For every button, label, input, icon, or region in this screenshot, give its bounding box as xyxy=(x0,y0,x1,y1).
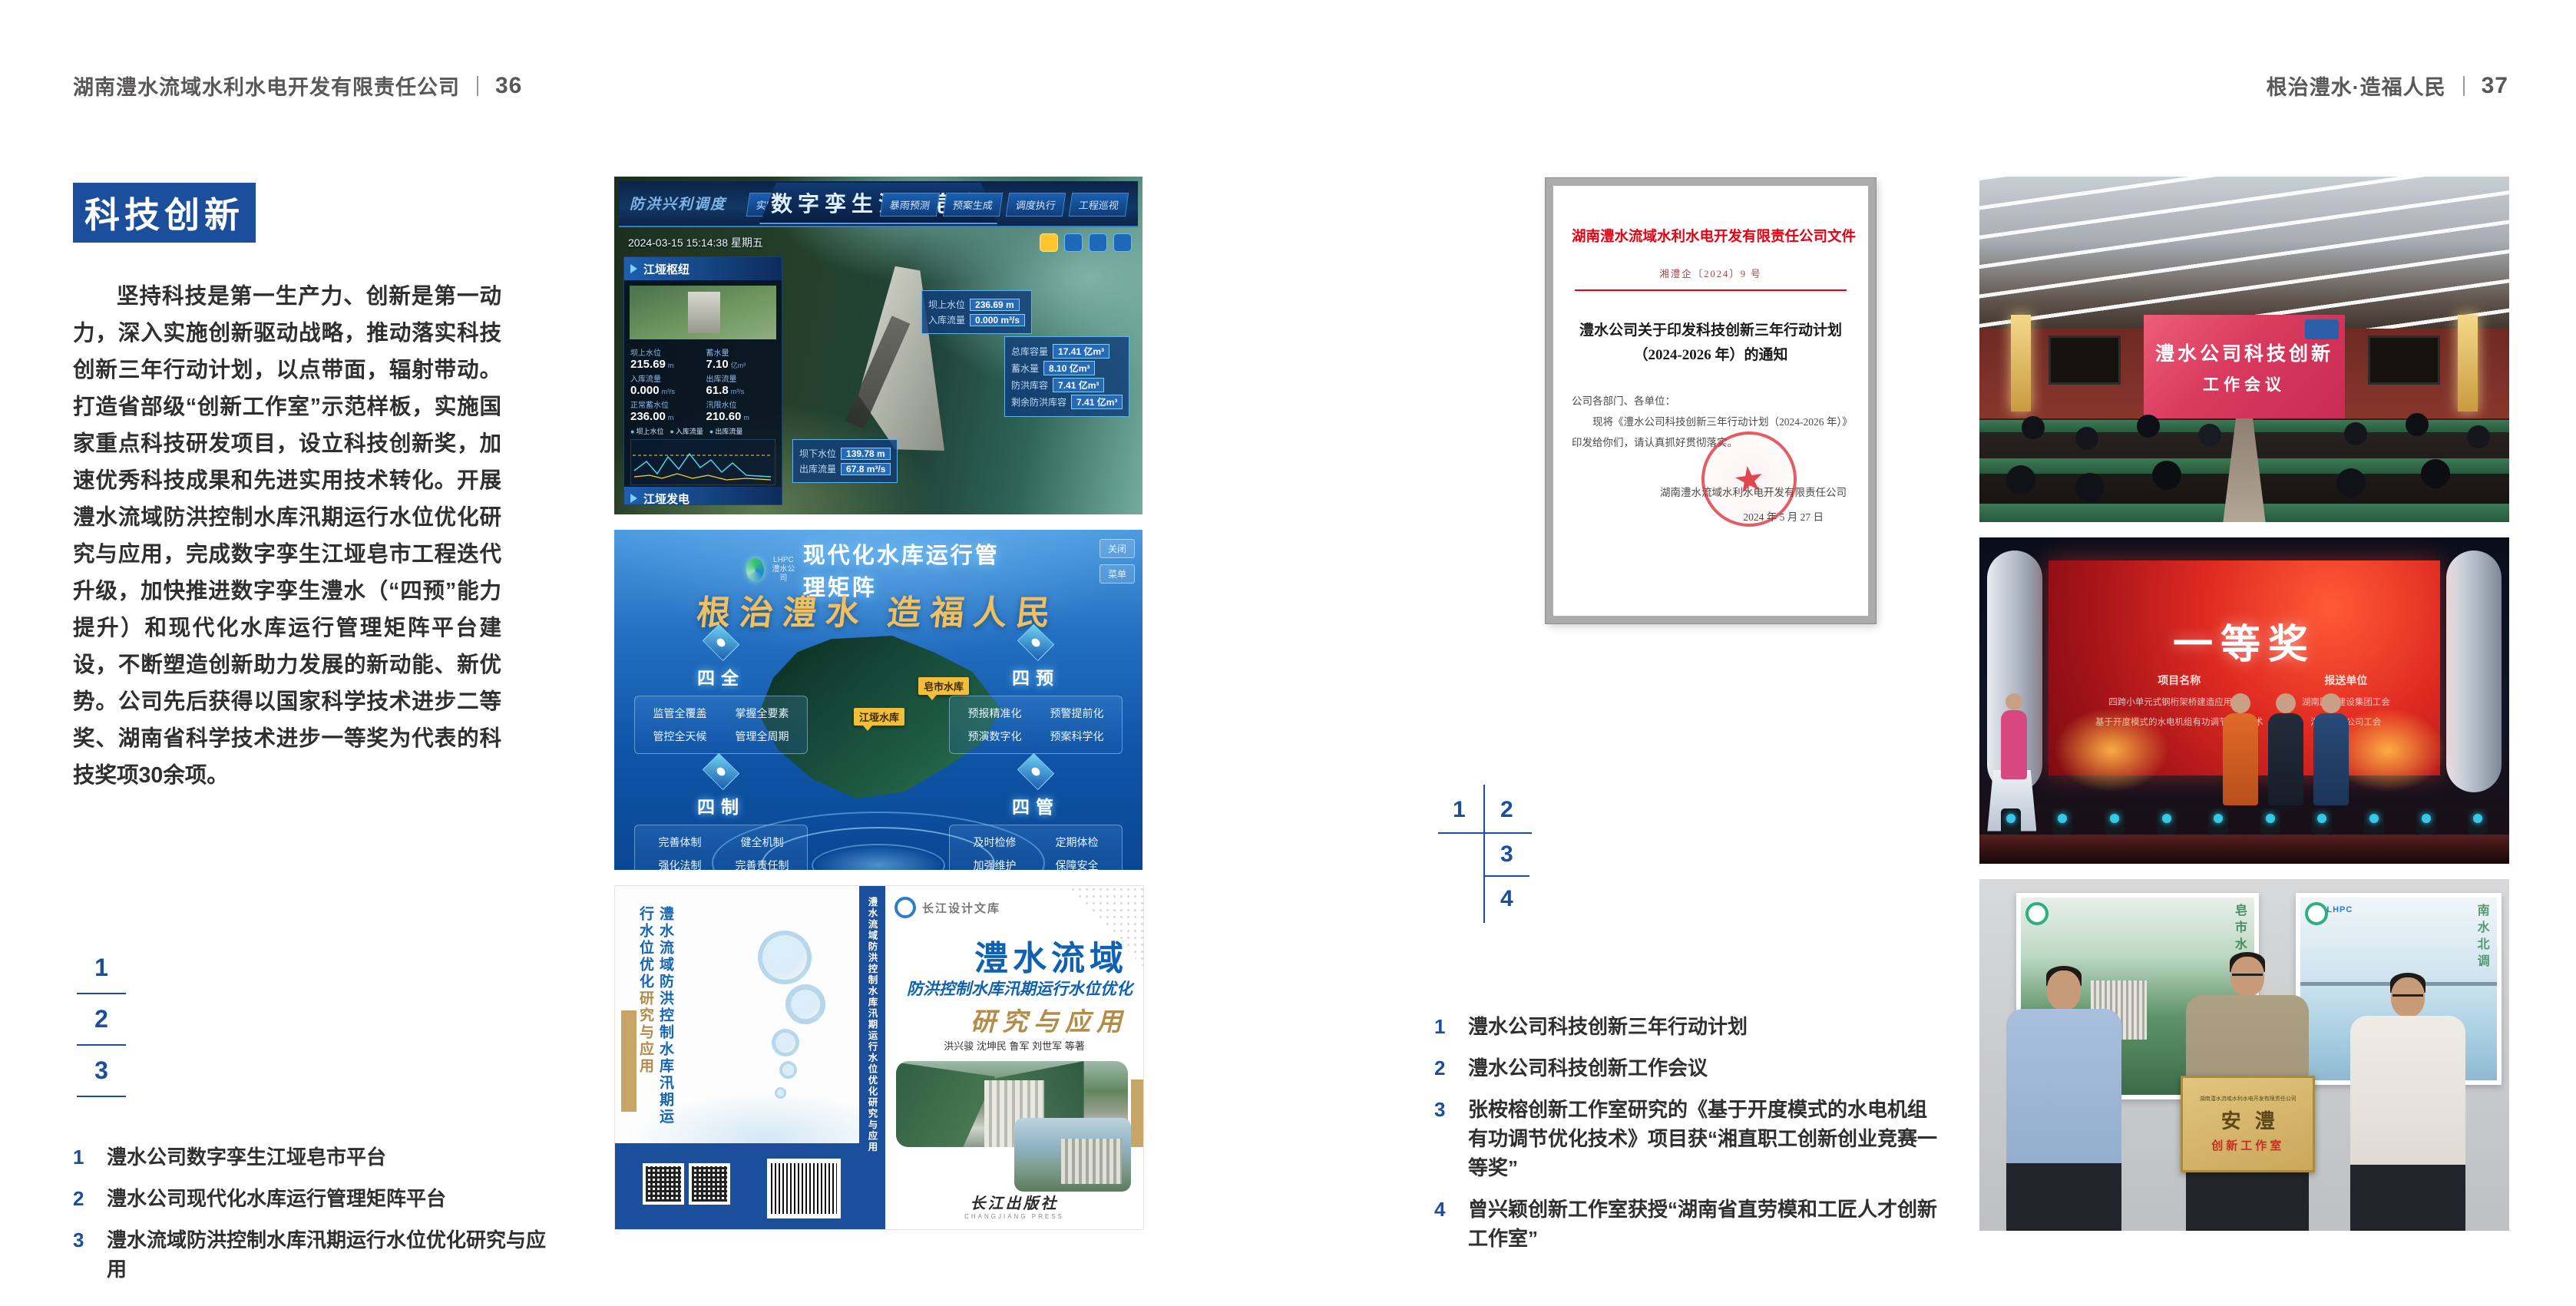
group-item: 定期体检 xyxy=(1038,835,1116,850)
triangle-icon xyxy=(630,264,637,273)
callout-label: 蓄水量 xyxy=(1011,362,1039,375)
stage-light xyxy=(2312,808,2332,835)
stat-number: 61.8 xyxy=(706,384,729,397)
callout-value: 8.10 亿m³ xyxy=(1043,361,1095,375)
spine-title: 澧水流域防洪控制水库汛期运行水位优化研究与应用 xyxy=(865,897,880,1153)
user-icon xyxy=(1113,233,1132,252)
stage-light xyxy=(2052,808,2072,835)
captions-right: 1 澧水公司科技创新三年行动计划 2 澧水公司科技创新工作会议 3 张桉榕创新工… xyxy=(1434,1012,1941,1265)
header-divider xyxy=(477,76,478,96)
matrix-button: 关闭 xyxy=(1100,539,1135,558)
caption-row: 3 张桉榕创新工作室研究的《基于开度模式的水电机组有功调节优化技术》项目获“湘直… xyxy=(1434,1095,1941,1182)
callout-row: 出库流量67.8 m³/s xyxy=(799,462,891,475)
stat-label: 正常蓄水位 xyxy=(630,398,700,410)
platform-header-bar: 防洪兴利调度 实时监测洪水预报防洪预演 数字孪生江垭皂市 暴雨预测预案生成调度执… xyxy=(619,181,1138,227)
figure-index-number: 3 xyxy=(1500,841,1513,868)
stage-pillar xyxy=(2446,551,2502,792)
qr-code xyxy=(689,1163,730,1205)
stat-number: 236.00 xyxy=(630,410,666,423)
group-name: 四管 xyxy=(949,792,1123,818)
document-date: 2024 年 5 月 27 日 xyxy=(1572,508,1850,524)
callout-value: 17.41 亿m³ xyxy=(1053,344,1109,359)
caption-text: 澧水公司现代化水库运行管理矩阵平台 xyxy=(107,1184,446,1213)
lhpc-logo-icon xyxy=(2305,902,2328,925)
index-horizontal-line xyxy=(1483,875,1529,877)
group-item: 保障安全 xyxy=(1038,858,1116,870)
platform-side-panel: 江垭枢纽 坝上水位215.69m蓄水量7.10亿m³入库流量0.000m³/s出… xyxy=(623,256,782,505)
stat-unit: m³/s xyxy=(731,388,745,395)
caption-row: 2 澧水公司科技创新工作会议 xyxy=(1434,1053,1941,1083)
water-droplet xyxy=(775,1087,786,1099)
hub-stats-grid: 坝上水位215.69m蓄水量7.10亿m³入库流量0.000m³/s出库流量61… xyxy=(624,345,782,425)
innovation-workshop-plaque: 湖南澧水流域水利水电开发有限责任公司 安澧 创新工作室 xyxy=(2181,1076,2315,1172)
water-droplet xyxy=(779,1061,797,1079)
callout-label: 出库流量 xyxy=(799,462,836,475)
group-item: 预警提前化 xyxy=(1038,706,1116,721)
group-item: 管控全天候 xyxy=(641,729,719,744)
index-horizontal-line xyxy=(1438,832,1532,834)
caption-text: 张桉榕创新工作室研究的《基于开度模式的水电机组有功调节优化技术》项目获“湘直职工… xyxy=(1468,1095,1941,1182)
body-paragraph: 坚持科技是第一生产力、创新是第一动力，深入实施创新驱动战略，推动落实科技创新三年… xyxy=(73,278,501,794)
caption-number: 2 xyxy=(73,1184,93,1213)
matrix-button: 菜单 xyxy=(1100,564,1135,584)
group-name: 四预 xyxy=(949,663,1123,689)
page-number-left: 36 xyxy=(495,73,522,99)
book-title-tail: 研究与应用 xyxy=(898,1001,1128,1038)
stat-unit: m xyxy=(668,414,674,422)
page-number-right: 37 xyxy=(2482,73,2508,99)
callout-label: 防洪库容 xyxy=(1011,379,1048,392)
photo-innovation-meeting: 澧水公司科技创新 工作会议 xyxy=(1979,177,2509,522)
stage-light xyxy=(2001,808,2021,835)
caption-row: 1 澧水公司科技创新三年行动计划 xyxy=(1434,1012,1941,1041)
callout-label: 总库容量 xyxy=(1011,345,1048,358)
series-logo-icon xyxy=(894,897,916,918)
callout-value: 7.41 亿m³ xyxy=(1071,395,1123,409)
panel-power-title: 江垭发电 xyxy=(643,491,689,506)
document-number: 湘澧企〔2024〕9 号 xyxy=(1572,266,1850,280)
mini-dam xyxy=(688,292,720,332)
figure-official-document: 湖南澧水流域水利水电开发有限责任公司文件 湘澧企〔2024〕9 号 澧水公司关于… xyxy=(1546,178,1876,623)
person-right xyxy=(2350,977,2465,1231)
legend-item: 坝上水位 xyxy=(630,426,663,436)
slogan-text: 根治澧水·造福人民 xyxy=(2267,71,2446,101)
figure-index-number: 1 xyxy=(1453,797,1466,823)
plaque-subtitle: 创新工作室 xyxy=(2211,1137,2284,1153)
index-vertical-line xyxy=(1483,785,1485,923)
diamond-icon xyxy=(703,624,739,661)
stat-value: 236.00m xyxy=(630,410,700,423)
callout-value: 67.8 m³/s xyxy=(841,463,891,475)
audience-silhouettes xyxy=(2006,465,2035,494)
callout-upstream: 坝上水位236.69 m入库流量0.000 m³/s xyxy=(921,290,1032,334)
caption-text: 澧水公司科技创新工作会议 xyxy=(1468,1053,1708,1083)
screen-logo xyxy=(2305,319,2339,339)
hub-thumbnail-photo xyxy=(630,286,776,339)
caption-text: 澧水流域防洪控制水库汛期运行水位优化研究与应用 xyxy=(107,1225,564,1284)
stat-label: 坝上水位 xyxy=(630,346,700,358)
group-item: 掌握全要素 xyxy=(723,706,801,721)
chart-svg xyxy=(631,440,775,483)
water-droplet xyxy=(758,931,812,984)
callout-row: 坝上水位236.69 m xyxy=(928,298,1025,311)
platform-tab: 工程巡视 xyxy=(1069,193,1129,217)
callout-row: 剩余防洪库容7.41 亿m³ xyxy=(1011,395,1123,409)
tan-accent-bar xyxy=(621,1010,637,1112)
figure-index-left: 123 xyxy=(77,946,126,1108)
callout-row: 蓄水量8.10 亿m³ xyxy=(1011,361,1123,375)
caption-number: 3 xyxy=(1434,1095,1454,1182)
callout-label: 剩余防洪库容 xyxy=(1011,395,1066,408)
tan-accent-bar xyxy=(1131,1080,1143,1147)
stat-value: 61.8m³/s xyxy=(706,384,776,397)
group-name: 四全 xyxy=(634,663,808,689)
lhpc-logo-text: LHPC xyxy=(2326,905,2353,914)
diamond-icon xyxy=(1017,753,1054,790)
back-title-blue: 澧水流域 xyxy=(657,906,673,974)
caption-number: 1 xyxy=(1434,1012,1454,1041)
cover-photo-dam-2 xyxy=(1014,1118,1131,1192)
group-item: 预报精准化 xyxy=(956,706,1033,721)
awardee-blue xyxy=(2313,713,2349,805)
stat: 坝上水位215.69m xyxy=(630,346,700,371)
stat-label: 汛限水位 xyxy=(706,398,776,410)
column-header: 项目名称 xyxy=(2095,673,2264,688)
screen-title-line2: 工作会议 xyxy=(2203,372,2286,395)
legend-item: 出库流量 xyxy=(709,426,742,436)
stat-label: 出库流量 xyxy=(706,372,776,384)
callout-label: 入库流量 xyxy=(928,313,965,326)
stage-light xyxy=(2260,808,2280,835)
callout-label: 坝上水位 xyxy=(928,298,965,311)
group-item: 预案科学化 xyxy=(1038,729,1116,744)
back-cover-blue-band xyxy=(615,1143,859,1229)
callout-value: 139.78 m xyxy=(841,448,891,460)
diamond-icon xyxy=(1017,624,1054,661)
platform-tab: 调度执行 xyxy=(1006,193,1066,217)
stat-value: 215.69m xyxy=(630,358,700,371)
group-panel: 监管全覆盖掌握全要素管控全天候管理全周期 xyxy=(634,696,808,754)
column-header: 报送单位 xyxy=(2290,673,2401,688)
caption-text: 澧水公司数字孪生江垭皂市平台 xyxy=(107,1142,386,1172)
plaque-title: 安澧 xyxy=(2207,1106,2289,1134)
panel-hub-title: 江垭枢纽 xyxy=(643,261,689,277)
book-spine: 澧水流域防洪控制水库汛期运行水位优化研究与应用 xyxy=(859,886,885,1229)
captions-left: 1 澧水公司数字孪生江垭皂市平台 2 澧水公司现代化水库运行管理矩阵平台 3 澧… xyxy=(73,1142,564,1296)
figure-book-cover: 澧水流域防洪控制水库汛期运行水位优化研究与应用 澧水流域防洪控制水库汛期运行水位… xyxy=(614,885,1144,1230)
stat-value: 0.000m³/s xyxy=(630,384,700,397)
platform-tabs-right: 暴雨预测预案生成调度执行工程巡视 xyxy=(881,193,1127,217)
document-red-header: 湖南澧水流域水利水电开发有限责任公司文件 xyxy=(1572,226,1850,246)
stat-value: 210.60m xyxy=(706,410,776,423)
figure-index-divider xyxy=(77,1096,126,1097)
matrix-slogan: 根治澧水 造福人民 xyxy=(695,585,1063,634)
publisher-name-en: CHANGJIANG PRESS xyxy=(885,1213,1143,1220)
stat-number: 0.000 xyxy=(630,384,660,397)
stat-value: 7.10亿m³ xyxy=(706,358,776,371)
callout-value: 0.000 m³/s xyxy=(970,314,1025,326)
matrix-buttons: 关闭菜单 xyxy=(1100,539,1135,584)
caption-number: 2 xyxy=(1434,1053,1454,1083)
document-red-rule xyxy=(1575,289,1847,291)
stat: 正常蓄水位236.00m xyxy=(630,398,700,423)
stat: 出库流量61.8m³/s xyxy=(706,372,776,397)
group-item: 强化法制 xyxy=(641,858,719,870)
right-page-header: 根治澧水·造福人民 37 xyxy=(2267,71,2508,101)
group-item: 预演数字化 xyxy=(956,729,1033,744)
poster-calligraphy: 南水北调 xyxy=(2472,904,2491,971)
caption-row: 4 曾兴颖创新工作室获授“湖南省直劳模和工匠人才创新工作室” xyxy=(1434,1195,1941,1253)
platform-mode-label: 防洪兴利调度 xyxy=(630,193,726,213)
figure-digital-twin-platform: 坝上水位236.69 m入库流量0.000 m³/s 总库容量17.41 亿m³… xyxy=(614,177,1143,514)
left-page-header: 湖南澧水流域水利水电开发有限责任公司 36 xyxy=(73,71,522,101)
caption-row: 3 澧水流域防洪控制水库汛期运行水位优化研究与应用 xyxy=(73,1225,564,1284)
panel-hub-header: 江垭枢纽 xyxy=(624,257,782,280)
back-title-tan: 研究与应用 xyxy=(637,990,653,1075)
callout-row: 防洪库容7.41 亿m³ xyxy=(1011,378,1123,392)
stage-light xyxy=(2105,808,2125,835)
caption-text: 曾兴颖创新工作室获授“湖南省直劳模和工匠人才创新工作室” xyxy=(1468,1195,1941,1253)
callout-value: 236.69 m xyxy=(970,299,1020,311)
diamond-icon xyxy=(703,753,739,790)
panel-power-header: 江垭发电 xyxy=(624,487,782,505)
person-left xyxy=(2006,970,2121,1231)
award-title: 一等奖 xyxy=(2049,612,2441,670)
lhpc-logo-icon xyxy=(746,558,764,581)
platform-timestamp: 2024-03-15 15:14:38 星期五 xyxy=(628,235,763,250)
stat-unit: m³/s xyxy=(662,388,676,395)
header-divider xyxy=(2463,76,2465,96)
caption-row: 1 澧水公司数字孪生江垭皂市平台 xyxy=(73,1142,564,1172)
figure-index-divider xyxy=(77,993,126,994)
photo-award-ceremony: 一等奖 项目名称 四跨小单元式钢桁架桥建造应用技术 基于开度模式的水电机组有功调… xyxy=(1979,537,2509,864)
platform-tab: 预案生成 xyxy=(943,193,1003,217)
photo-workshop-plaque: 皂市水库 LHPC 南水北调 湖南澧水流域水利水电开发有限责任公司 安澧 创新工… xyxy=(1979,879,2509,1231)
book-front-cover: 长江设计文库 澧水流域 防洪控制水库汛期运行水位优化 研究与应用 洪兴骏 沈坤民… xyxy=(885,886,1143,1229)
stage-glow xyxy=(2054,708,2169,792)
stat-unit: m xyxy=(668,362,674,369)
stage-light xyxy=(2468,808,2488,835)
locate-icon xyxy=(1089,233,1107,252)
book-title-sub: 防洪控制水库汛期运行水位优化 xyxy=(890,977,1133,1000)
platform-tab: 暴雨预测 xyxy=(880,193,940,217)
document-paragraph: 现将《澧水公司科技创新三年行动计划（2024-2026 年）》印发给你们，请认真… xyxy=(1572,412,1850,453)
gold-light-column xyxy=(2011,315,2031,412)
callout-label: 坝下水位 xyxy=(799,447,836,460)
stat-unit: m xyxy=(743,414,749,422)
group-name: 四制 xyxy=(634,792,808,818)
platform-toolbar-icons xyxy=(1040,233,1132,252)
plaque-header: 湖南澧水流域水利水电开发有限责任公司 xyxy=(2200,1095,2297,1103)
publisher-block: 长江出版社 CHANGJIANG PRESS xyxy=(885,1191,1143,1220)
book-back-cover: 澧水流域防洪控制水库汛期运行水位优化研究与应用 xyxy=(615,886,859,1229)
publisher-name: 长江出版社 xyxy=(885,1191,1143,1213)
stat-number: 215.69 xyxy=(630,358,666,371)
matrix-group-siyu: 四预 预报精准化预警提前化预演数字化预案科学化 xyxy=(949,628,1123,754)
triangle-icon xyxy=(630,494,637,503)
group-item: 完善体制 xyxy=(641,835,719,850)
stat: 汛限水位210.60m xyxy=(706,398,776,423)
stage-light xyxy=(2416,808,2436,835)
layers-icon xyxy=(1064,233,1083,252)
host-figure xyxy=(2001,710,2027,779)
figure-index-number: 2 xyxy=(1500,797,1513,823)
wall-tv xyxy=(2049,336,2121,385)
alert-icon xyxy=(1040,233,1058,252)
projection-screen: 澧水公司科技创新 工作会议 xyxy=(2144,315,2345,418)
caption-number: 3 xyxy=(73,1225,93,1284)
stage-light xyxy=(2364,808,2384,835)
stat-number: 7.10 xyxy=(706,358,729,371)
presenter-suit xyxy=(2268,713,2303,805)
stage-lights-row xyxy=(2001,808,2488,835)
water-droplet xyxy=(772,1029,799,1056)
legend-item: 入库流量 xyxy=(670,426,703,436)
back-cover-vertical-title: 澧水流域防洪控制水库汛期运行水位优化研究与应用 xyxy=(635,906,675,1136)
group-panel: 预报精准化预警提前化预演数字化预案科学化 xyxy=(949,696,1123,754)
map-tag-jiangya: 江垭水库 xyxy=(854,708,904,726)
figure-index-number: 4 xyxy=(1500,886,1513,912)
water-level-chart xyxy=(630,439,775,485)
callout-row: 坝下水位139.78 m xyxy=(799,447,891,460)
series-logo: 长江设计文库 xyxy=(894,897,1000,918)
section-badge: 科技创新 xyxy=(73,183,256,243)
barcode xyxy=(767,1159,841,1218)
lhpc-logo-text: LHPC澧水公司 xyxy=(772,556,795,584)
figure-index-number: 3 xyxy=(77,1056,126,1085)
lhpc-logo-icon xyxy=(2025,902,2049,925)
book-authors: 洪兴骏 沈坤民 鲁军 刘世军 等著 xyxy=(885,1038,1143,1053)
stat-number: 210.60 xyxy=(706,410,742,423)
awardee-orange xyxy=(2223,713,2258,805)
wall-tv xyxy=(2368,336,2440,385)
document-body: 公司各部门、各单位： 现将《澧水公司科技创新三年行动计划（2024-2026 年… xyxy=(1572,391,1850,453)
group-item: 管理全周期 xyxy=(723,729,801,744)
caption-number: 1 xyxy=(73,1142,93,1172)
caption-row: 2 澧水公司现代化水库运行管理矩阵平台 xyxy=(73,1184,564,1213)
award-org: 湖南路桥建设集团工会 xyxy=(2290,696,2401,708)
group-item: 监管全覆盖 xyxy=(641,706,719,721)
callout-value: 7.41 亿m³ xyxy=(1053,378,1104,392)
stat: 入库流量0.000m³/s xyxy=(630,372,700,397)
callout-row: 总库容量17.41 亿m³ xyxy=(1011,344,1123,359)
stat-label: 入库流量 xyxy=(630,372,700,384)
stat-unit: 亿m³ xyxy=(731,362,746,369)
matrix-group-siquan: 四全 监管全覆盖掌握全要素管控全天候管理全周期 xyxy=(634,628,808,754)
figure-index-divider xyxy=(77,1044,126,1046)
caption-number: 4 xyxy=(1434,1195,1454,1253)
company-name: 湖南澧水流域水利水电开发有限责任公司 xyxy=(73,71,460,101)
figure-index-right: 1 2 3 4 xyxy=(1434,785,1588,938)
floor-reflection xyxy=(1979,835,2509,864)
figure-index-number: 2 xyxy=(77,1005,126,1033)
callout-row: 入库流量0.000 m³/s xyxy=(928,313,1025,326)
gold-light-column xyxy=(2458,315,2478,412)
screen-title-line1: 澧水公司科技创新 xyxy=(2155,339,2333,366)
callout-downstream: 坝下水位139.78 m出库流量67.8 m³/s xyxy=(792,439,898,483)
callout-capacity: 总库容量17.41 亿m³蓄水量8.10 亿m³防洪库容7.41 亿m³剩余防洪… xyxy=(1004,336,1129,417)
series-name: 长江设计文库 xyxy=(922,900,1000,916)
figure-index-number: 1 xyxy=(77,954,126,982)
stat: 蓄水量7.10亿m³ xyxy=(706,346,776,371)
book-title-main: 澧水流域 xyxy=(898,931,1128,980)
document-salutation: 公司各部门、各单位： xyxy=(1572,391,1850,412)
chart-legend: 坝上水位入库流量出库流量 xyxy=(624,425,782,438)
stage-light xyxy=(2208,808,2228,835)
document-title: 澧水公司关于印发科技创新三年行动计划 （2024-2026 年）的通知 xyxy=(1572,319,1850,368)
stage-light xyxy=(2157,808,2177,835)
caption-text: 澧水公司科技创新三年行动计划 xyxy=(1468,1012,1748,1041)
ceiling-light-strips xyxy=(1979,177,2509,336)
stat-label: 蓄水量 xyxy=(706,346,776,358)
figure-matrix-platform: LHPC澧水公司 现代化水库运行管理矩阵 关闭菜单 根治澧水 造福人民 皂市水库… xyxy=(614,530,1143,870)
qr-code xyxy=(643,1163,684,1205)
water-droplet xyxy=(785,984,825,1024)
audience-silhouettes xyxy=(2022,416,2045,439)
